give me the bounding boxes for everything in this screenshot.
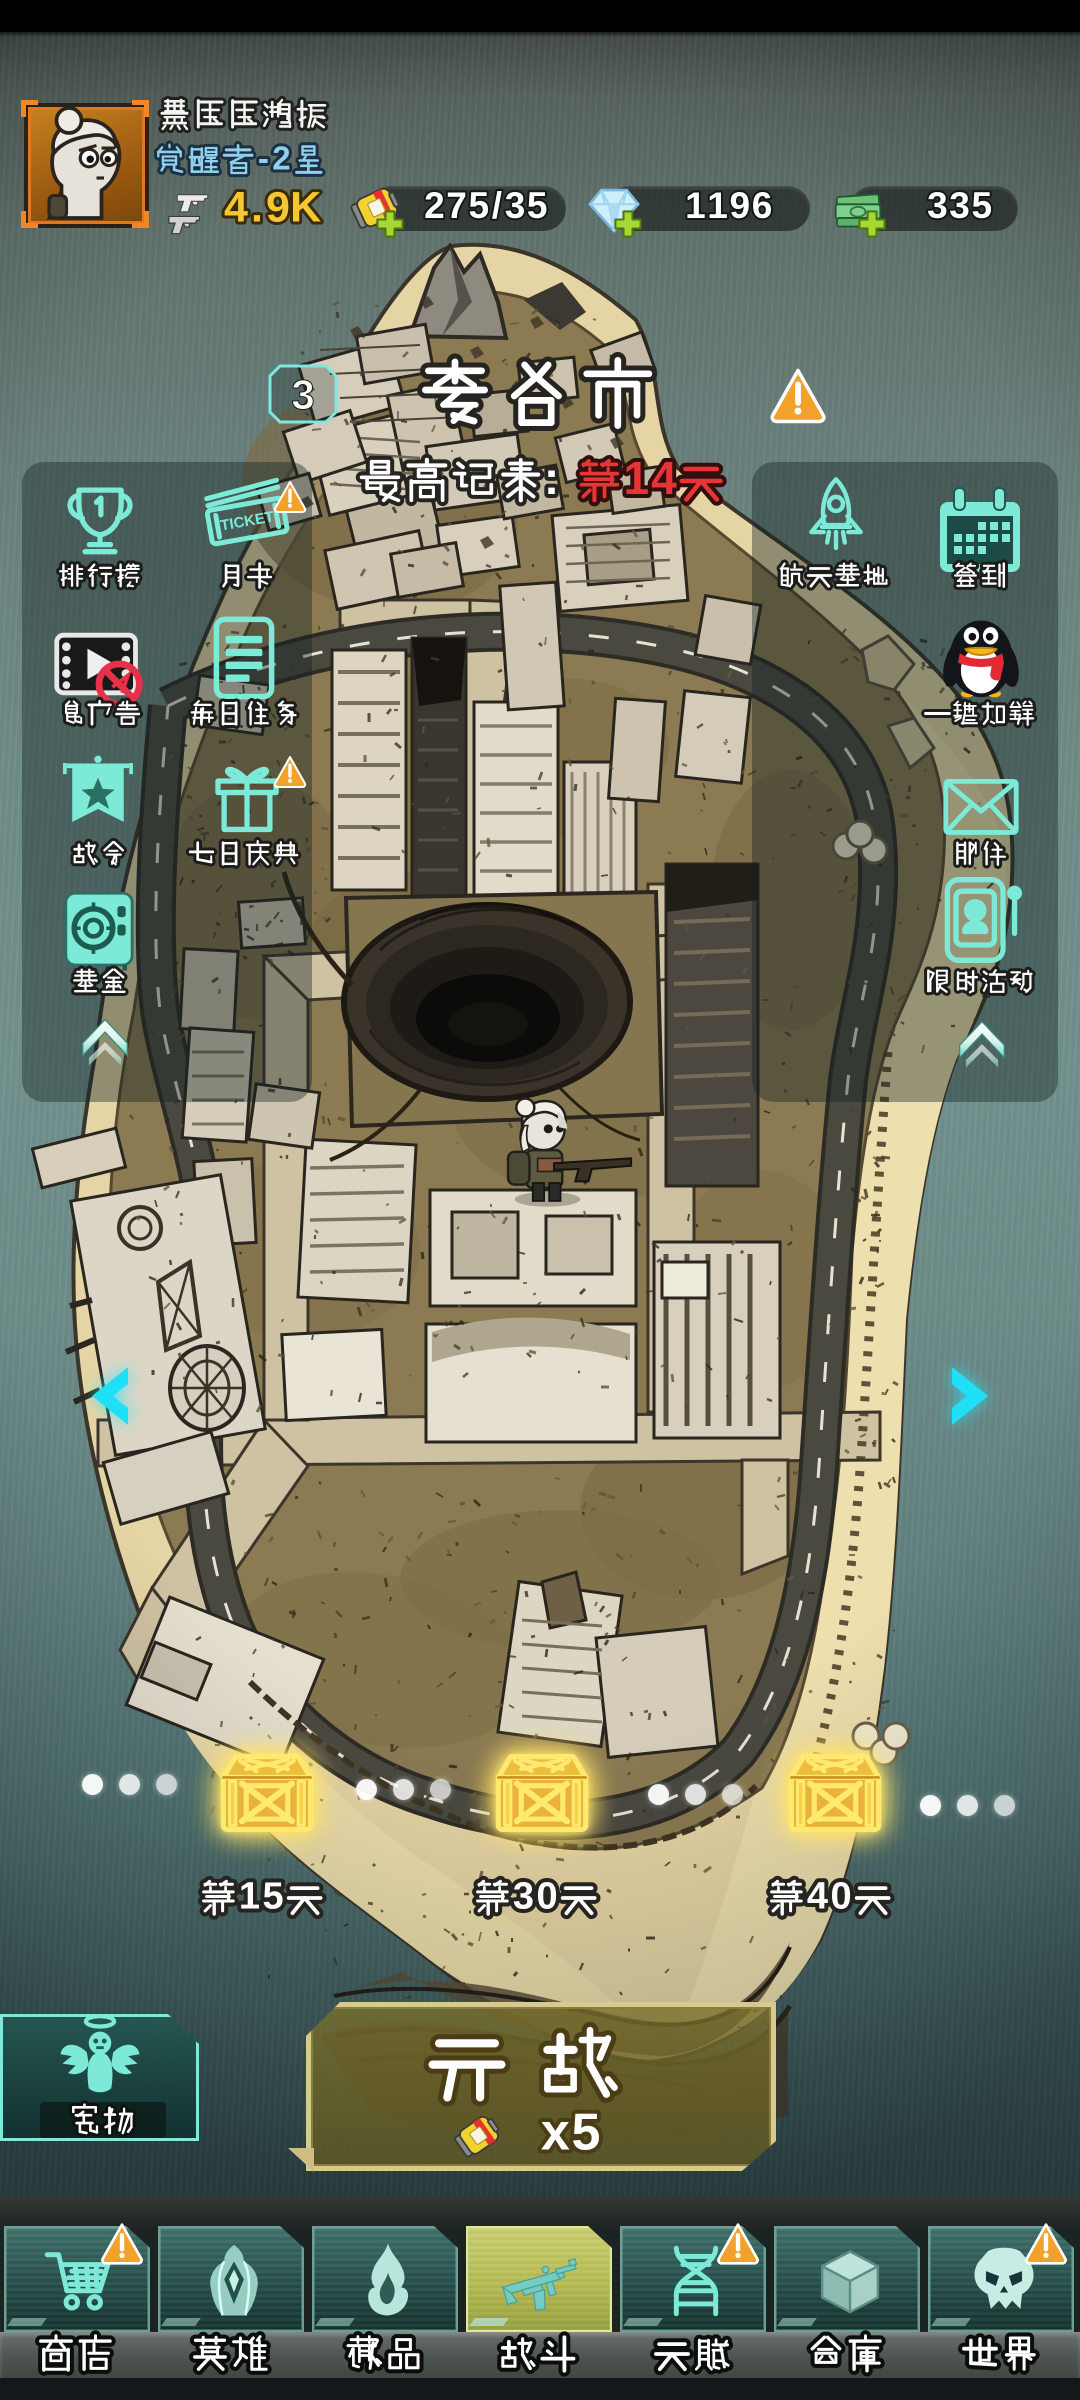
svg-text:K: K	[290, 184, 321, 232]
svg-text:0: 0	[831, 1876, 852, 1918]
svg-text:TICKET: TICKET	[219, 508, 275, 534]
svg-text:9: 9	[266, 184, 290, 232]
svg-text:.: .	[251, 184, 263, 232]
svg-text:3: 3	[513, 1876, 534, 1918]
svg-text:5: 5	[527, 186, 548, 226]
svg-text:3: 3	[927, 186, 948, 226]
svg-text::: :	[544, 453, 559, 504]
svg-text:5: 5	[263, 1876, 284, 1918]
svg-text:/: /	[492, 186, 502, 226]
svg-text:x: x	[541, 2104, 570, 2162]
svg-text:7: 7	[446, 186, 467, 226]
svg-text:6: 6	[752, 186, 773, 226]
svg-text:1: 1	[624, 453, 650, 504]
svg-text:5: 5	[469, 186, 490, 226]
svg-text:5: 5	[572, 2104, 601, 2162]
svg-text:4: 4	[651, 453, 677, 504]
svg-text:1: 1	[707, 186, 728, 226]
svg-text:-: -	[258, 140, 269, 177]
svg-text:5: 5	[972, 186, 993, 226]
svg-text:1: 1	[239, 1876, 260, 1918]
svg-text:4: 4	[224, 184, 248, 232]
svg-text:3: 3	[949, 186, 970, 226]
svg-text:4: 4	[807, 1876, 828, 1918]
svg-text:1: 1	[685, 186, 706, 226]
svg-text:3: 3	[505, 186, 526, 226]
svg-text:3: 3	[291, 371, 314, 418]
svg-text:0: 0	[537, 1876, 558, 1918]
svg-text:2: 2	[424, 186, 445, 226]
svg-text:2: 2	[272, 140, 290, 177]
svg-text:9: 9	[730, 186, 751, 226]
